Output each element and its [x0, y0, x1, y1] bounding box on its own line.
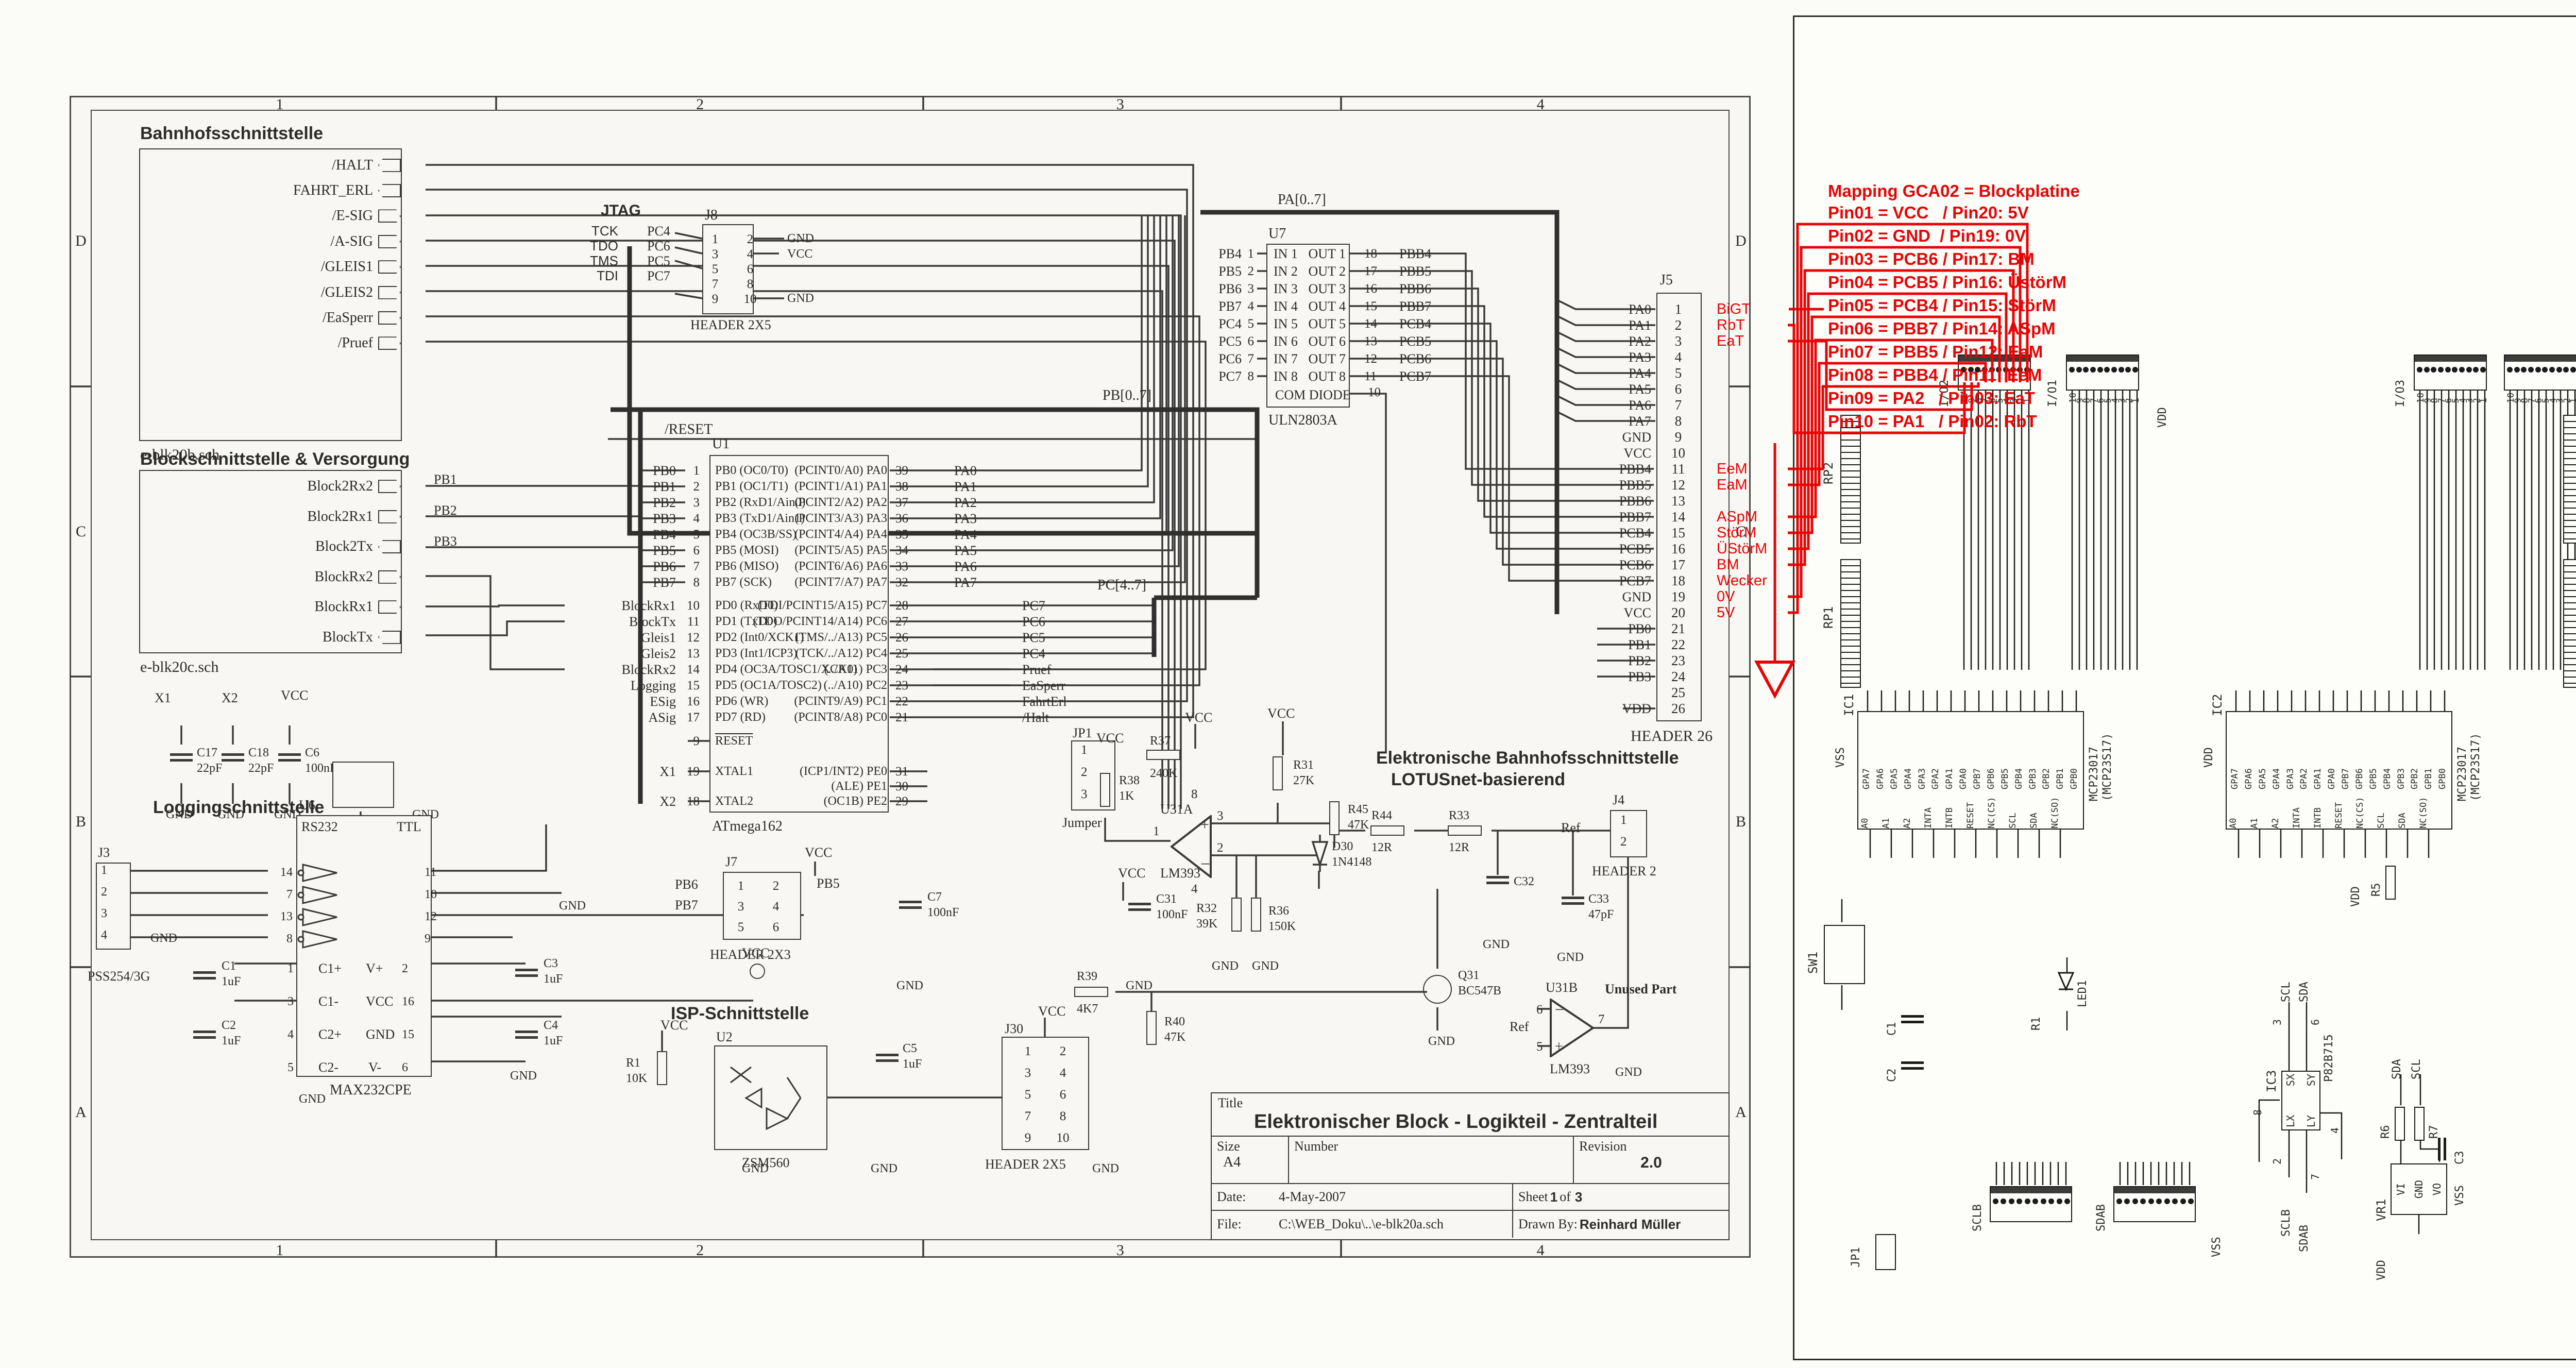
- pin-number: 6: [740, 262, 760, 277]
- r40-ref: R40: [1164, 1015, 1185, 1029]
- header-pin-row: 5 6: [1018, 1084, 1073, 1106]
- u31b-note: Unused Part: [1605, 982, 1676, 997]
- pin-number: 3: [1018, 1066, 1038, 1080]
- u6-inverter-pins: 14 11 7 10 13 12 8 9: [268, 862, 425, 950]
- net-label: PA1: [929, 479, 977, 495]
- u7-pin-row: OUT 8 11 PCB7: [1268, 368, 1431, 385]
- c31-capacitor: [1128, 903, 1151, 911]
- j8-ref: J8: [705, 207, 718, 224]
- mapping-line: Pin01 = VCC / Pin20: 5V: [1828, 203, 2080, 226]
- u7-pin-row: OUT 6 13 PCB5: [1268, 333, 1431, 350]
- of-label: of: [1560, 1189, 1571, 1205]
- svg-text:−: −: [1555, 1000, 1564, 1019]
- red-annotation: ASpM: [1705, 509, 1757, 526]
- ruler-row-label: A: [1731, 967, 1751, 1258]
- pin-number: 1: [1081, 743, 1088, 765]
- pin-function: (PCINT8/A8) PC0: [717, 711, 887, 724]
- ic-pin-label: SDA: [2397, 772, 2418, 829]
- pin-number: 3: [2465, 393, 2471, 403]
- pin-number: 3: [705, 247, 725, 262]
- vr1-vi: VI: [2395, 1183, 2407, 1195]
- d30-ref: D30: [1332, 840, 1353, 854]
- vr1-ref: VR1: [2374, 1190, 2388, 1221]
- sheet-pin-label: Block2Tx: [315, 538, 373, 555]
- pin-number: 17: [680, 711, 707, 725]
- red-annotation: Wecker: [1705, 572, 1767, 589]
- ruler-col-label: 4: [1330, 1242, 1751, 1259]
- u1-pin-row: (PCINT9/A9) PC1 22 FahrtErl: [717, 694, 1067, 710]
- net-label: PB2: [434, 503, 457, 534]
- j5-pin-row: PBB5 12 EaM: [1546, 477, 1767, 493]
- net-label: PB0: [564, 463, 680, 479]
- c3-ref: C3: [544, 957, 558, 971]
- j8-part: HEADER 2X5: [690, 317, 771, 333]
- net-label: PA7: [1546, 414, 1651, 429]
- pin-number: 11: [347, 866, 425, 880]
- c2-ref: C2: [222, 1019, 236, 1033]
- pin-number: 18: [1651, 573, 1705, 589]
- schematic-title: Elektronischer Block - Logikteil - Zentr…: [1218, 1111, 1722, 1133]
- u1-right-pa: (PCINT0/A0) PA0 39 PA0 (PCINT1/A1) PA1 3…: [717, 463, 977, 590]
- pin-number: 30: [887, 780, 929, 794]
- svg-text:+: +: [1555, 1039, 1563, 1055]
- ic3-pin8: 8: [2251, 1100, 2264, 1116]
- ic1-part-alt: (MCP23S17): [2101, 719, 2114, 801]
- ic3-box: SX SY LX LY: [2281, 1071, 2320, 1130]
- pin-number: 13: [680, 647, 707, 661]
- pin-number: 9: [2513, 393, 2519, 403]
- pin-function: OUT 8: [1268, 369, 1346, 384]
- ic-pin-label: INTB: [2313, 772, 2334, 829]
- ic-pin-label: SCL: [2008, 772, 2029, 829]
- c5-ref: C5: [903, 1042, 917, 1056]
- ref-label: Ref: [1561, 820, 1581, 836]
- inverter-symbol: [297, 864, 343, 882]
- left-ruler-top: 1234: [70, 96, 1751, 113]
- pin-number: 16: [680, 695, 707, 709]
- bottom-connector-2: [2113, 1186, 2196, 1222]
- pin-number: 6: [1242, 334, 1266, 349]
- crystal-symbol: [332, 762, 394, 808]
- net-label: PCB4: [1546, 526, 1651, 541]
- u1-pin-row: (TMS/../A13) PC5 26 PC5: [717, 630, 1067, 646]
- u7-pin-row: OUT 4 15 PBB7: [1268, 298, 1431, 315]
- pin-number: 14: [268, 866, 293, 880]
- pin-number: 4: [1053, 1066, 1073, 1080]
- ic-pin-label: RESET: [2334, 772, 2355, 829]
- jtag-rows: TCK PC4 TDO PC6 TMS PC5 TDI PC7: [562, 224, 680, 283]
- pin-number: 8: [1053, 1109, 1073, 1124]
- scl-label: SCL: [2410, 1051, 2423, 1079]
- pin-number: 2: [2472, 393, 2478, 403]
- pin-number: 12: [1651, 477, 1705, 493]
- vss-label: VSS: [2210, 1226, 2223, 1257]
- pin-number: 15: [1651, 525, 1705, 541]
- j5-pin-row: PA1 2 RbT: [1546, 317, 1767, 333]
- u1-pin-row: (PCINT8/A8) PC0 21 /Halt: [717, 710, 1067, 725]
- net-label: PC7: [1206, 369, 1242, 384]
- pin-number: 6: [2534, 393, 2540, 403]
- pin-number: 21: [1651, 621, 1705, 637]
- pin-number: 4: [2548, 393, 2554, 403]
- r40-value: 47K: [1164, 1031, 1185, 1044]
- ruler-row-label: D: [71, 96, 91, 386]
- u31a-pin3: 3: [1217, 809, 1224, 823]
- vdd-label: VDD: [2375, 1252, 2388, 1280]
- pin-number: 10: [347, 888, 425, 902]
- pin-number: 2: [101, 885, 107, 907]
- jtag-net: PC7: [618, 268, 680, 284]
- pin-number: 23: [1651, 653, 1705, 669]
- block2-title: Blockschnittstelle & Versorgung: [140, 449, 410, 469]
- pin-number: 5: [1242, 317, 1266, 331]
- j7-left-nets: PB6PB7: [675, 877, 698, 918]
- pin-number: 15: [1346, 299, 1387, 314]
- red-annotation: EeM: [1705, 461, 1748, 478]
- pin-number: 2: [1053, 1044, 1073, 1059]
- ic3-ref: IC3: [2264, 1061, 2279, 1092]
- pin-number: 32: [887, 576, 929, 590]
- pin-number: 13: [268, 910, 293, 924]
- vcc-label: VCC: [1118, 866, 1145, 881]
- pin-number: 7: [705, 277, 725, 292]
- j5-pin-row: GND 9: [1546, 429, 1767, 445]
- pin-number: 5: [680, 528, 707, 542]
- pin-number: 8: [1242, 369, 1266, 384]
- pin-number: 4: [2458, 393, 2464, 403]
- pin-number: 4: [680, 512, 707, 526]
- jtag-row: TDO PC6: [562, 239, 680, 254]
- sw1-ref: SW1: [1806, 938, 1820, 974]
- net-label: GND: [1546, 430, 1651, 445]
- sheet-pin-symbol: [378, 209, 401, 223]
- sdab-label: SDAB: [2298, 1221, 2311, 1252]
- ic-pin-label: A0: [1860, 772, 1881, 829]
- pin-number: 29: [887, 795, 929, 809]
- gnd-label: GND: [1428, 1035, 1455, 1049]
- r33-value: 12R: [1449, 841, 1469, 855]
- c1-ref: C1: [222, 959, 236, 973]
- c6-ref: C6: [305, 746, 319, 760]
- pin-function: V-: [335, 1060, 381, 1075]
- vdd-label: VDD: [2349, 876, 2362, 907]
- net-label: PA4: [929, 527, 977, 543]
- u31a-pin1: 1: [1153, 824, 1160, 839]
- gnd-label: GND: [1615, 1066, 1642, 1079]
- pin-number: 3: [680, 496, 707, 510]
- jtag-net: PC5: [618, 254, 680, 269]
- pin-number: 7: [1242, 352, 1266, 366]
- pin-number: 9: [680, 734, 707, 749]
- gnd-label: GND: [1212, 959, 1239, 973]
- net-label: PA6: [1546, 398, 1651, 413]
- c33-ref: C33: [1588, 892, 1609, 906]
- net-label: PB6: [675, 877, 698, 898]
- pin-number: 10: [740, 292, 760, 307]
- u7-pin-row: OUT 1 18 PBB4: [1268, 245, 1431, 263]
- ruler-col-label: 1: [70, 96, 490, 113]
- block2-pins: Block2Rx2 Block2Rx1 Block2Tx BlockRx2 Bl…: [133, 471, 401, 652]
- net-label: PCB5: [1546, 542, 1651, 557]
- x1-net: X1: [155, 690, 171, 706]
- net-label: PA0: [929, 463, 977, 479]
- net-label: BlockRx2: [564, 662, 680, 678]
- svg-text:+: +: [1200, 816, 1209, 833]
- mapping-line: Pin09 = PA2 / Pin03: EaT: [1828, 389, 2080, 412]
- sheet-pin-symbol: [378, 184, 401, 197]
- pin-number: 3: [278, 995, 294, 1009]
- header-pin-row: 1 2: [731, 876, 786, 897]
- pin-number: 8: [680, 576, 707, 590]
- u1-right-pc: (TDI/PCINT15/A15) PC7 28 PC7 (TDO/PCINT1…: [717, 598, 1067, 725]
- jtag-signal: TMS: [562, 253, 618, 269]
- c33-value: 47pF: [1588, 908, 1614, 922]
- c3-capacitor-r: [2438, 1138, 2446, 1160]
- c17-ref: C17: [197, 746, 217, 760]
- r39-ref: R39: [1077, 970, 1097, 984]
- pin-number: 21: [887, 711, 929, 725]
- net-label: PBB7: [1387, 299, 1431, 314]
- left-titleblock: Title Elektronischer Block - Logikteil -…: [1211, 1092, 1730, 1240]
- gnd-label: GND: [1483, 938, 1510, 952]
- left-ruler-left: DCBA: [71, 96, 91, 1258]
- mapping-line: Pin07 = PBB5 / Pin12: EaM: [1828, 342, 2080, 365]
- r45-value: 47K: [1348, 818, 1369, 832]
- r1-value: 10K: [626, 1072, 647, 1086]
- net-label: PA4: [1546, 366, 1651, 381]
- net-label: PB1: [1546, 637, 1651, 653]
- pin-number: 9: [1018, 1131, 1038, 1145]
- r33-ref: R33: [1449, 809, 1469, 823]
- pin-function: (PCINT3/A3) PA3: [717, 512, 887, 526]
- r38-value: 1K: [1119, 789, 1134, 803]
- c1-capacitor: [193, 971, 216, 979]
- ic2-ref: IC2: [2210, 685, 2225, 716]
- sheet-pin-symbol: [378, 540, 401, 553]
- rp4-resistor-network: [2563, 415, 2576, 544]
- net-label: PB1: [434, 472, 457, 503]
- header-pin-row: 5 6: [705, 262, 760, 277]
- vcc-label: VCC: [1038, 1004, 1065, 1019]
- c31-ref: C31: [1156, 892, 1177, 906]
- net-label: PC7: [929, 598, 1045, 614]
- ruler-row-label: A: [71, 967, 91, 1258]
- ruler-col-label: 1: [70, 1242, 490, 1259]
- header-pin-row: 3 4: [731, 897, 786, 917]
- gnd-label: GND: [1252, 959, 1279, 973]
- net-label: FahrtErl: [929, 694, 1067, 710]
- pin-number: 4: [101, 928, 107, 950]
- bottom-connector-1: [1990, 1186, 2072, 1222]
- pin-number: 34: [887, 544, 929, 558]
- header-pin-row: 3 4: [1018, 1062, 1073, 1084]
- j30-part: HEADER 2X5: [985, 1157, 1066, 1172]
- r32-value: 39K: [1196, 917, 1217, 931]
- pin-number: 8: [268, 932, 293, 946]
- r37-ref: R37: [1150, 734, 1171, 748]
- pin-function: V+: [335, 961, 381, 976]
- j30-pins: 1 2 3 4 5 6 7 8 9 10: [1018, 1041, 1073, 1149]
- header-pin-row: 7 8: [705, 277, 760, 292]
- net-label: PA0: [1546, 302, 1651, 317]
- r38-resistor: [1100, 773, 1110, 807]
- header-pin-row: 7 8: [1018, 1106, 1073, 1127]
- pin-number: 6: [1053, 1088, 1073, 1102]
- date-label: Date:: [1212, 1189, 1279, 1205]
- c2-capacitor: [193, 1031, 216, 1039]
- r44-value: 12R: [1371, 841, 1392, 855]
- net-label: VCC: [1546, 446, 1651, 461]
- vcc-symbol: [750, 964, 765, 979]
- c32-capacitor: [1486, 876, 1509, 884]
- pin-function: (PCINT5/A5) PA5: [717, 544, 887, 558]
- u6-ref: U6: [299, 798, 315, 813]
- pin-number: 10: [2416, 393, 2422, 403]
- j5-pin-row: PA2 3 EaT: [1546, 333, 1767, 349]
- net-label: Gleis2: [564, 646, 680, 662]
- sw1-box: [1824, 925, 1865, 984]
- pin-function: OUT 4: [1268, 299, 1346, 314]
- pin-function: (ALE) PE1: [717, 780, 887, 793]
- u1-pin-row: (PCINT3/A3) PA3 36 PA3: [717, 511, 977, 527]
- u31a-pin8: 8: [1191, 787, 1198, 802]
- sheet-pin: Block2Rx2: [133, 471, 401, 502]
- j5-pin-row: GND 19 0V: [1546, 589, 1767, 605]
- u1-pin-row: (../A10) PC2 23 EaSperr: [717, 678, 1067, 694]
- q31-part: BC547B: [1458, 984, 1501, 998]
- pin-function: (PCINT2/A2) PA2: [717, 496, 887, 510]
- mapping-line: Pin04 = PCB5 / Pin16: ÜstörM: [1828, 273, 2080, 296]
- sheet-pin-symbol: [378, 570, 401, 584]
- j5-pin-row: VCC 10: [1546, 445, 1767, 461]
- red-annotation: BM: [1705, 556, 1739, 573]
- net-label: BlockRx1: [564, 598, 680, 614]
- r39-value: 4K7: [1077, 1002, 1098, 1016]
- sheet-pin-label: /GLEIS1: [321, 259, 373, 275]
- net-label: PCB6: [1546, 558, 1651, 573]
- ic-pin-label: SDA: [2029, 772, 2050, 829]
- u7-pin-row: OUT 5 14 PCB4: [1268, 315, 1431, 333]
- sheet-total: 3: [1575, 1189, 1582, 1205]
- led1-ref: LED1: [2076, 971, 2089, 1007]
- sclb-label: SCLB: [2280, 1206, 2293, 1237]
- net-label: PBB6: [1387, 281, 1431, 297]
- net-label: PB3: [1546, 669, 1651, 685]
- pin-number: 15: [381, 1028, 414, 1042]
- ic3-pin3: 3: [2271, 1010, 2283, 1025]
- pin-number: 25: [1651, 685, 1705, 701]
- rp3-resistor-network: [2563, 559, 2576, 688]
- ic2-bottom-pins: A0A1A2INTAINTBRESETNC(CS)SCLSDANC(SO): [2228, 772, 2439, 829]
- pin-number: 17: [1346, 264, 1387, 279]
- net-label: PCB5: [1387, 334, 1431, 349]
- sheet-pin-label: BlockRx2: [314, 569, 373, 585]
- pin-number: 5: [731, 920, 751, 935]
- pin-number: 12: [1346, 352, 1387, 366]
- u7-ref: U7: [1268, 226, 1286, 242]
- jtag-net: PC6: [618, 239, 680, 254]
- pin-number: 9: [347, 932, 425, 946]
- header-pin-row: 1 2: [1018, 1041, 1073, 1062]
- mapping-line: Pin05 = PCB4 / Pin15: StörM: [1828, 296, 2080, 319]
- pin-number: 6: [680, 544, 707, 558]
- jp1-ref-r: JP1: [1850, 1237, 1862, 1268]
- io-connector-3-pins: 10987654321: [2416, 393, 2485, 403]
- pin-number: 1: [278, 962, 294, 976]
- r36-value: 150K: [1268, 920, 1296, 934]
- j5-pin-row: PBB6 13: [1546, 493, 1767, 509]
- mapping-line: Pin03 = PCB6 / Pin17: BM: [1828, 249, 2080, 273]
- pin-number: 3: [731, 900, 751, 914]
- pin-number: 25: [887, 647, 929, 661]
- j5-part: HEADER 26: [1631, 728, 1713, 745]
- pin-number: 6: [2096, 393, 2102, 403]
- r45-resistor: [1329, 801, 1340, 835]
- net-label: PB7: [1206, 299, 1242, 314]
- pin-number: 11: [1346, 369, 1387, 384]
- jtag-net: PC4: [618, 224, 680, 239]
- pin-number: 1: [2479, 393, 2485, 403]
- j7-part: HEADER 2X3: [710, 947, 791, 962]
- u1-part: ATmega162: [712, 818, 783, 835]
- u7-pin-row: OUT 7 12 PCB6: [1268, 350, 1431, 368]
- r39-resistor: [1074, 987, 1108, 997]
- pin-number: 2: [1081, 765, 1088, 787]
- net-label: BlockTx: [564, 614, 680, 630]
- pin-number: 2: [766, 879, 786, 893]
- r31-ref: R31: [1293, 758, 1314, 772]
- vr1-box: VI GND VO: [2391, 1163, 2447, 1215]
- pin-number: 1: [2131, 393, 2137, 403]
- c33-capacitor: [1562, 897, 1584, 905]
- u7-pin-row: OUT 2 17 PBB5: [1268, 263, 1431, 280]
- pin-function: C1-: [294, 994, 335, 1009]
- u1-pin-row: (../A11) PC3 24 Pruef: [717, 662, 1067, 678]
- ref-label: Ref: [1510, 1019, 1529, 1035]
- sda-label: SDA: [2391, 1051, 2403, 1079]
- net-label: Gleis1: [564, 630, 680, 646]
- ic-pin-label: NC(CS): [2355, 772, 2376, 829]
- r44-resistor: [1370, 825, 1404, 836]
- pin-function: (TDI/PCINT15/A15) PC7: [717, 599, 887, 613]
- sheet-pin-symbol: [378, 631, 401, 644]
- net-label: PA3: [1546, 350, 1651, 365]
- net-label: PBB4: [1546, 462, 1651, 477]
- pin-number: 36: [887, 512, 929, 526]
- file-label: File:: [1212, 1217, 1279, 1232]
- pin-number: 14: [680, 663, 707, 677]
- j5-pin-row: PBB4 11 EeM: [1546, 461, 1767, 477]
- net-label: PB5: [1206, 264, 1242, 279]
- c6-capacitor: [278, 753, 301, 762]
- x2-net: X2: [222, 690, 238, 706]
- pin-number: 12: [680, 631, 707, 645]
- pin-number: 1: [1018, 1044, 1038, 1059]
- ruler-col-label: 2: [490, 96, 910, 113]
- sheet-pin-label: /EaSperr: [323, 310, 373, 326]
- ruler-col-label: 3: [910, 96, 1331, 113]
- j5-pin-row: PCB7 18 Wecker: [1546, 573, 1767, 589]
- gnd-label: GND: [1557, 951, 1584, 965]
- net-label: PBB6: [1546, 494, 1651, 509]
- sheet-pin-label: /GLEIS2: [321, 284, 373, 301]
- j8-pins: 1 2 3 4 5 6 7 8 9 10: [705, 232, 760, 307]
- sheet-pin-symbol: [378, 235, 401, 248]
- ruler-row-label: B: [1731, 677, 1751, 968]
- net-label: PBB5: [1546, 478, 1651, 493]
- j5-pin-row: PCB4 15 StörM: [1546, 525, 1767, 541]
- net-label: PA2: [1546, 334, 1651, 349]
